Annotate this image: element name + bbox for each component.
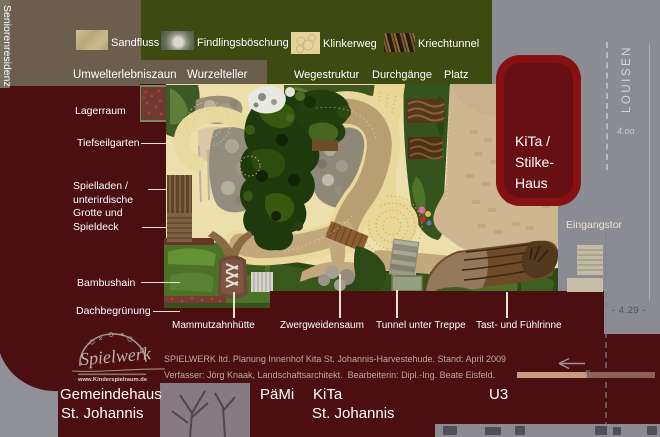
- svg-text:Spielwerk: Spielwerk: [79, 343, 152, 369]
- svg-text:www.Kinderspielraum.de: www.Kinderspielraum.de: [77, 377, 148, 383]
